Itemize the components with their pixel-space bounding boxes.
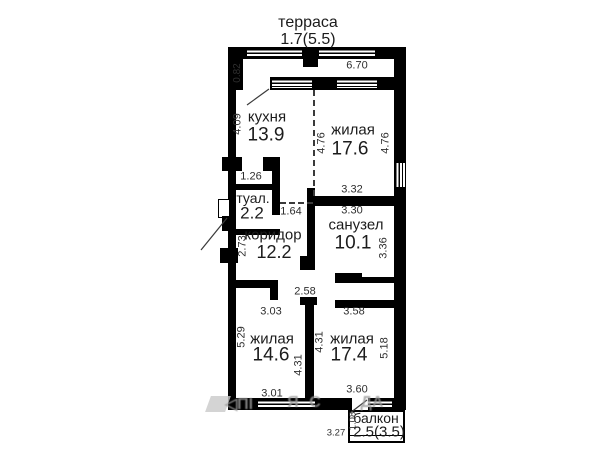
kitchen-corridor-dashed-line bbox=[280, 202, 313, 204]
corridor-label: коридор bbox=[244, 228, 301, 243]
dim-kitchen-height: 4.09 bbox=[233, 113, 244, 134]
living1-area: 17.6 bbox=[332, 140, 369, 159]
bathroom-label: санузел bbox=[329, 218, 384, 233]
kitchen-area: 13.9 bbox=[248, 126, 285, 145]
dim-living2-bottom: 3.01 bbox=[261, 389, 282, 400]
dim-wall-middle-right: 4.31 bbox=[315, 331, 326, 352]
balcony-area: 2.5(3.5) bbox=[353, 425, 405, 440]
dim-toilet-niche: 1.26 bbox=[240, 172, 261, 183]
wall-bathroom-bottom-b bbox=[362, 277, 394, 283]
wall-terrace-pier-center bbox=[303, 47, 318, 67]
terrace-window bbox=[247, 49, 302, 57]
wall-kitchen-bottom-seg bbox=[263, 157, 280, 171]
dim-bathroom-top: 3.30 bbox=[341, 206, 362, 217]
wall-left-thick bbox=[220, 248, 238, 263]
wall-right bbox=[394, 47, 406, 410]
dim-balcony-depth: 1.08 bbox=[348, 412, 358, 431]
corridor-area: 12.2 bbox=[256, 243, 291, 261]
dim-living2-left: 5.29 bbox=[237, 326, 248, 347]
wall-bathroom-left bbox=[307, 188, 315, 258]
dim-balcony-width: 3.27 bbox=[327, 428, 346, 438]
living2-area: 14.6 bbox=[253, 346, 290, 365]
dim-living2-top: 3.03 bbox=[260, 307, 281, 318]
toilet-area: 2.2 bbox=[240, 205, 264, 222]
dim-wall-middle-left: 4.31 bbox=[294, 354, 305, 375]
terrace-area: 1.7(5.5) bbox=[280, 32, 335, 48]
dim-corridor-left: 2.73 bbox=[238, 235, 249, 256]
dim-bathroom-right: 3.36 bbox=[379, 237, 390, 258]
dim-living3-top: 3.58 bbox=[343, 307, 364, 318]
dim-living3-right: 5.18 bbox=[380, 337, 391, 358]
dim-living1-bottom: 3.32 bbox=[341, 185, 362, 196]
watermark-logo: ◁ПІ bbox=[225, 394, 253, 414]
living1-window bbox=[337, 79, 377, 88]
dim-terrace-width: 6.70 bbox=[346, 61, 367, 72]
bathroom-area: 10.1 bbox=[335, 234, 372, 253]
dim-corridor-gap: 1.64 bbox=[280, 207, 301, 218]
watermark-letter: С bbox=[309, 394, 321, 412]
living3-area: 17.4 bbox=[331, 346, 368, 365]
watermark-letter: ДА bbox=[361, 394, 384, 412]
wall-stub-left bbox=[270, 280, 278, 300]
living1-label: жилая bbox=[331, 123, 375, 138]
kitchen-label: кухня bbox=[248, 110, 286, 125]
wall-middle-cap bbox=[300, 297, 317, 305]
floor-plan: терраса 1.7(5.5) кухня 13.9 жилая 17.6 т… bbox=[0, 0, 612, 460]
dim-living1-left: 4.76 bbox=[317, 132, 328, 153]
wall-bathroom-left-block bbox=[300, 256, 315, 270]
wall-bathroom-bottom-a bbox=[335, 273, 362, 283]
wall-left-step bbox=[222, 157, 242, 171]
kitchen-window bbox=[272, 79, 312, 88]
dim-terrace-depth: 0.82 bbox=[233, 63, 243, 82]
dim-corridor-bottom: 2.58 bbox=[294, 287, 315, 298]
living1-side-window bbox=[395, 163, 405, 187]
watermark-letter: Я bbox=[287, 394, 299, 412]
terrace-label: терраса bbox=[278, 15, 338, 31]
dim-living1-right: 4.76 bbox=[381, 132, 392, 153]
terrace-window bbox=[319, 49, 375, 57]
